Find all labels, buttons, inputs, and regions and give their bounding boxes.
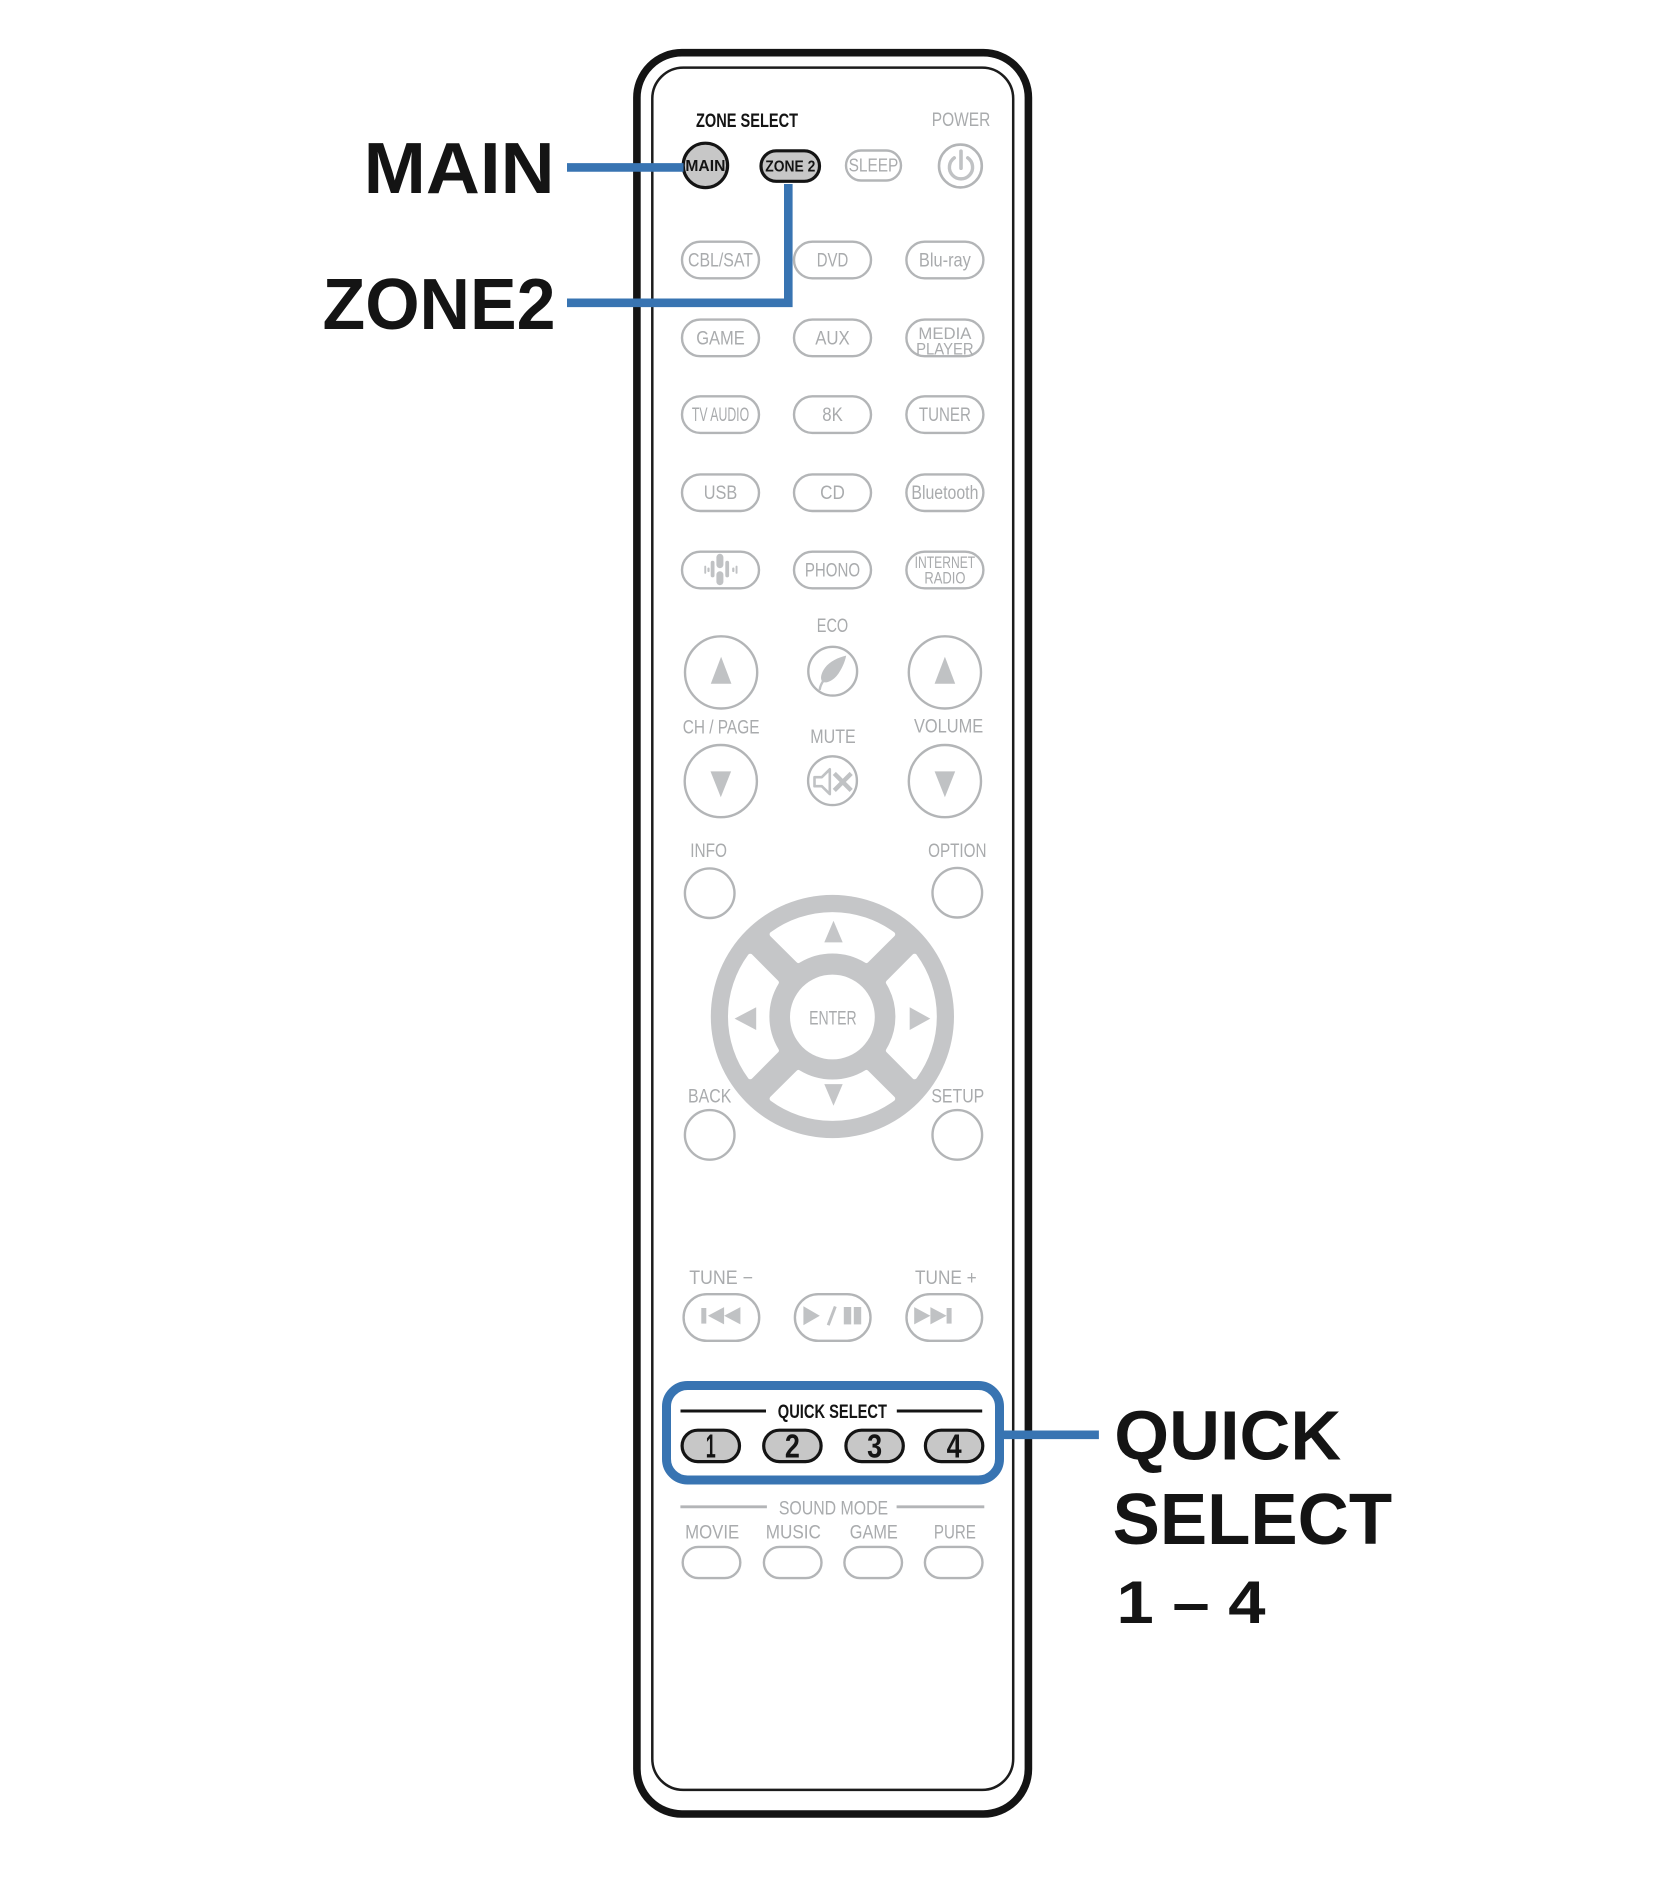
svg-text:GAME: GAME [696, 328, 745, 349]
svg-text:PURE: PURE [934, 1523, 976, 1544]
svg-text:DVD: DVD [817, 251, 849, 272]
svg-text:SOUND MODE: SOUND MODE [779, 1499, 888, 1520]
svg-text:3: 3 [867, 1428, 882, 1465]
svg-text:1 – 4: 1 – 4 [1117, 1569, 1267, 1636]
svg-text:TV AUDIO: TV AUDIO [692, 405, 749, 426]
svg-text:1: 1 [706, 1428, 716, 1465]
svg-text:SELECT: SELECT [1113, 1479, 1393, 1560]
svg-text:4: 4 [947, 1428, 963, 1465]
svg-text:PLAYER: PLAYER [916, 340, 974, 359]
svg-text:MAIN: MAIN [364, 128, 555, 209]
svg-text:QUICK: QUICK [1114, 1397, 1341, 1475]
svg-text:VOLUME: VOLUME [914, 716, 983, 737]
svg-text:INFO: INFO [690, 841, 727, 862]
svg-text:USB: USB [704, 483, 738, 504]
svg-text:ZONE 2: ZONE 2 [765, 159, 815, 176]
svg-text:BACK: BACK [688, 1086, 732, 1107]
svg-text:CBL/SAT: CBL/SAT [688, 251, 753, 272]
svg-text:Blu-ray: Blu-ray [919, 251, 971, 272]
svg-text:SETUP: SETUP [931, 1086, 984, 1107]
svg-text:MUTE: MUTE [810, 727, 855, 748]
svg-text:RADIO: RADIO [924, 569, 965, 588]
svg-text:CD: CD [820, 483, 845, 504]
svg-text:MUSIC: MUSIC [766, 1523, 821, 1544]
svg-text:PHONO: PHONO [805, 561, 860, 582]
svg-text:ZONE2: ZONE2 [323, 264, 556, 345]
svg-text:ZONE SELECT: ZONE SELECT [696, 110, 798, 132]
svg-text:POWER: POWER [932, 110, 991, 131]
svg-text:GAME: GAME [850, 1523, 898, 1544]
svg-text:2: 2 [785, 1428, 800, 1465]
svg-text:MAIN: MAIN [685, 158, 725, 175]
svg-text:TUNE +: TUNE + [915, 1268, 977, 1289]
svg-text:TUNE −: TUNE − [689, 1268, 753, 1289]
svg-text:8K: 8K [822, 405, 843, 426]
svg-text:SLEEP: SLEEP [849, 156, 899, 176]
svg-text:QUICK SELECT: QUICK SELECT [778, 1401, 887, 1423]
svg-text:TUNER: TUNER [919, 405, 971, 426]
svg-text:MOVIE: MOVIE [685, 1523, 739, 1544]
svg-text:CH / PAGE: CH / PAGE [683, 718, 760, 739]
svg-text:OPTION: OPTION [928, 841, 986, 862]
svg-text:AUX: AUX [815, 328, 850, 349]
svg-text:Bluetooth: Bluetooth [911, 483, 978, 504]
svg-text:ENTER: ENTER [809, 1009, 857, 1030]
svg-text:ECO: ECO [817, 616, 848, 637]
